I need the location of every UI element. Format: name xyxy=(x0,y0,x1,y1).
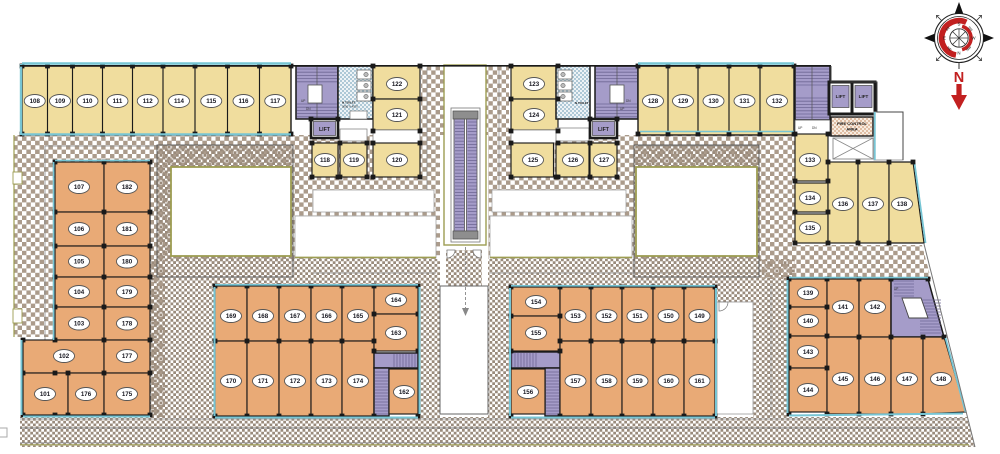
svg-text:110: 110 xyxy=(83,98,94,105)
svg-text:140: 140 xyxy=(803,318,814,325)
svg-text:126: 126 xyxy=(568,157,579,164)
svg-text:146: 146 xyxy=(870,376,881,383)
svg-text:162: 162 xyxy=(399,389,410,396)
svg-text:DN: DN xyxy=(812,126,817,130)
svg-text:N: N xyxy=(954,70,964,86)
svg-text:148: 148 xyxy=(936,376,947,383)
svg-text:104: 104 xyxy=(74,289,85,296)
svg-text:135: 135 xyxy=(805,225,816,232)
svg-text:105: 105 xyxy=(74,259,85,266)
svg-text:118: 118 xyxy=(320,157,331,164)
svg-text:UP: UP xyxy=(301,99,305,103)
svg-text:DN: DN xyxy=(306,107,311,111)
svg-text:106: 106 xyxy=(74,226,85,233)
svg-text:101: 101 xyxy=(40,391,51,398)
svg-text:163: 163 xyxy=(391,330,402,337)
svg-text:147: 147 xyxy=(902,376,913,383)
svg-text:133: 133 xyxy=(805,157,816,164)
svg-text:LIFT: LIFT xyxy=(598,127,610,133)
svg-text:103: 103 xyxy=(74,321,85,328)
svg-text:120: 120 xyxy=(392,157,403,164)
svg-text:169: 169 xyxy=(226,313,237,320)
svg-text:149: 149 xyxy=(694,313,705,320)
svg-text:158: 158 xyxy=(601,378,612,385)
svg-text:152: 152 xyxy=(601,313,612,320)
svg-text:143: 143 xyxy=(803,349,814,356)
svg-text:176: 176 xyxy=(81,391,92,398)
svg-text:178: 178 xyxy=(122,321,133,328)
svg-text:FIRE CONTROL: FIRE CONTROL xyxy=(837,121,868,126)
svg-text:174: 174 xyxy=(353,378,364,385)
svg-text:127: 127 xyxy=(599,157,610,164)
svg-text:175: 175 xyxy=(122,391,133,398)
svg-text:UP: UP xyxy=(798,126,802,130)
svg-text:UP: UP xyxy=(620,107,624,111)
svg-text:168: 168 xyxy=(258,313,269,320)
svg-text:LIFT: LIFT xyxy=(836,94,846,99)
svg-text:102: 102 xyxy=(59,353,70,360)
svg-text:139: 139 xyxy=(803,290,814,297)
svg-text:3050 X 4570: 3050 X 4570 xyxy=(342,104,358,108)
svg-text:170: 170 xyxy=(226,378,237,385)
svg-text:134: 134 xyxy=(805,195,816,202)
svg-text:LIFT: LIFT xyxy=(859,94,869,99)
svg-text:129: 129 xyxy=(678,98,689,105)
svg-text:150: 150 xyxy=(663,313,674,320)
svg-text:122: 122 xyxy=(392,81,403,88)
svg-text:123: 123 xyxy=(529,81,540,88)
svg-text:182: 182 xyxy=(122,184,133,191)
svg-text:114: 114 xyxy=(174,98,185,105)
svg-text:172: 172 xyxy=(290,378,301,385)
svg-text:125: 125 xyxy=(528,157,539,164)
svg-text:N: N xyxy=(957,51,960,56)
svg-text:177: 177 xyxy=(122,353,133,360)
svg-text:DN: DN xyxy=(626,99,631,103)
svg-text:124: 124 xyxy=(529,112,540,119)
svg-text:132: 132 xyxy=(772,98,783,105)
svg-text:142: 142 xyxy=(870,304,881,311)
svg-text:138: 138 xyxy=(897,201,908,208)
svg-text:167: 167 xyxy=(290,313,301,320)
svg-text:136: 136 xyxy=(838,201,849,208)
svg-text:S: S xyxy=(958,22,961,27)
svg-text:107: 107 xyxy=(74,184,85,191)
svg-text:UP: UP xyxy=(894,287,898,291)
svg-text:115: 115 xyxy=(206,98,217,105)
svg-text:161: 161 xyxy=(694,378,705,385)
svg-text:LIFT: LIFT xyxy=(319,127,331,133)
svg-text:N.TOILET: N.TOILET xyxy=(575,101,589,105)
svg-text:151: 151 xyxy=(632,313,643,320)
svg-text:164: 164 xyxy=(391,297,402,304)
svg-text:128: 128 xyxy=(648,98,659,105)
svg-text:109: 109 xyxy=(55,98,66,105)
svg-text:171: 171 xyxy=(258,378,269,385)
svg-text:121: 121 xyxy=(392,112,403,119)
svg-text:160: 160 xyxy=(663,378,674,385)
svg-text:144: 144 xyxy=(803,387,814,394)
svg-text:130: 130 xyxy=(708,98,719,105)
svg-text:156: 156 xyxy=(523,389,534,396)
svg-text:145: 145 xyxy=(838,376,849,383)
svg-text:108: 108 xyxy=(30,98,41,105)
svg-text:137: 137 xyxy=(868,201,879,208)
svg-text:165: 165 xyxy=(353,313,364,320)
svg-text:116: 116 xyxy=(239,98,250,105)
svg-text:155: 155 xyxy=(531,330,542,337)
svg-text:153: 153 xyxy=(570,313,581,320)
svg-text:173: 173 xyxy=(321,378,332,385)
svg-text:112: 112 xyxy=(143,98,154,105)
svg-text:E: E xyxy=(943,36,946,41)
svg-text:166: 166 xyxy=(321,313,332,320)
svg-text:141: 141 xyxy=(838,304,849,311)
svg-text:119: 119 xyxy=(349,157,360,164)
svg-text:117: 117 xyxy=(270,98,281,105)
svg-text:157: 157 xyxy=(570,378,581,385)
svg-text:180: 180 xyxy=(122,259,133,266)
svg-text:159: 159 xyxy=(632,378,643,385)
svg-text:179: 179 xyxy=(122,289,133,296)
svg-text:154: 154 xyxy=(531,299,542,306)
svg-text:181: 181 xyxy=(122,226,133,233)
svg-text:131: 131 xyxy=(739,98,750,105)
svg-text:111: 111 xyxy=(113,98,123,105)
svg-text:AREA: AREA xyxy=(846,127,857,132)
